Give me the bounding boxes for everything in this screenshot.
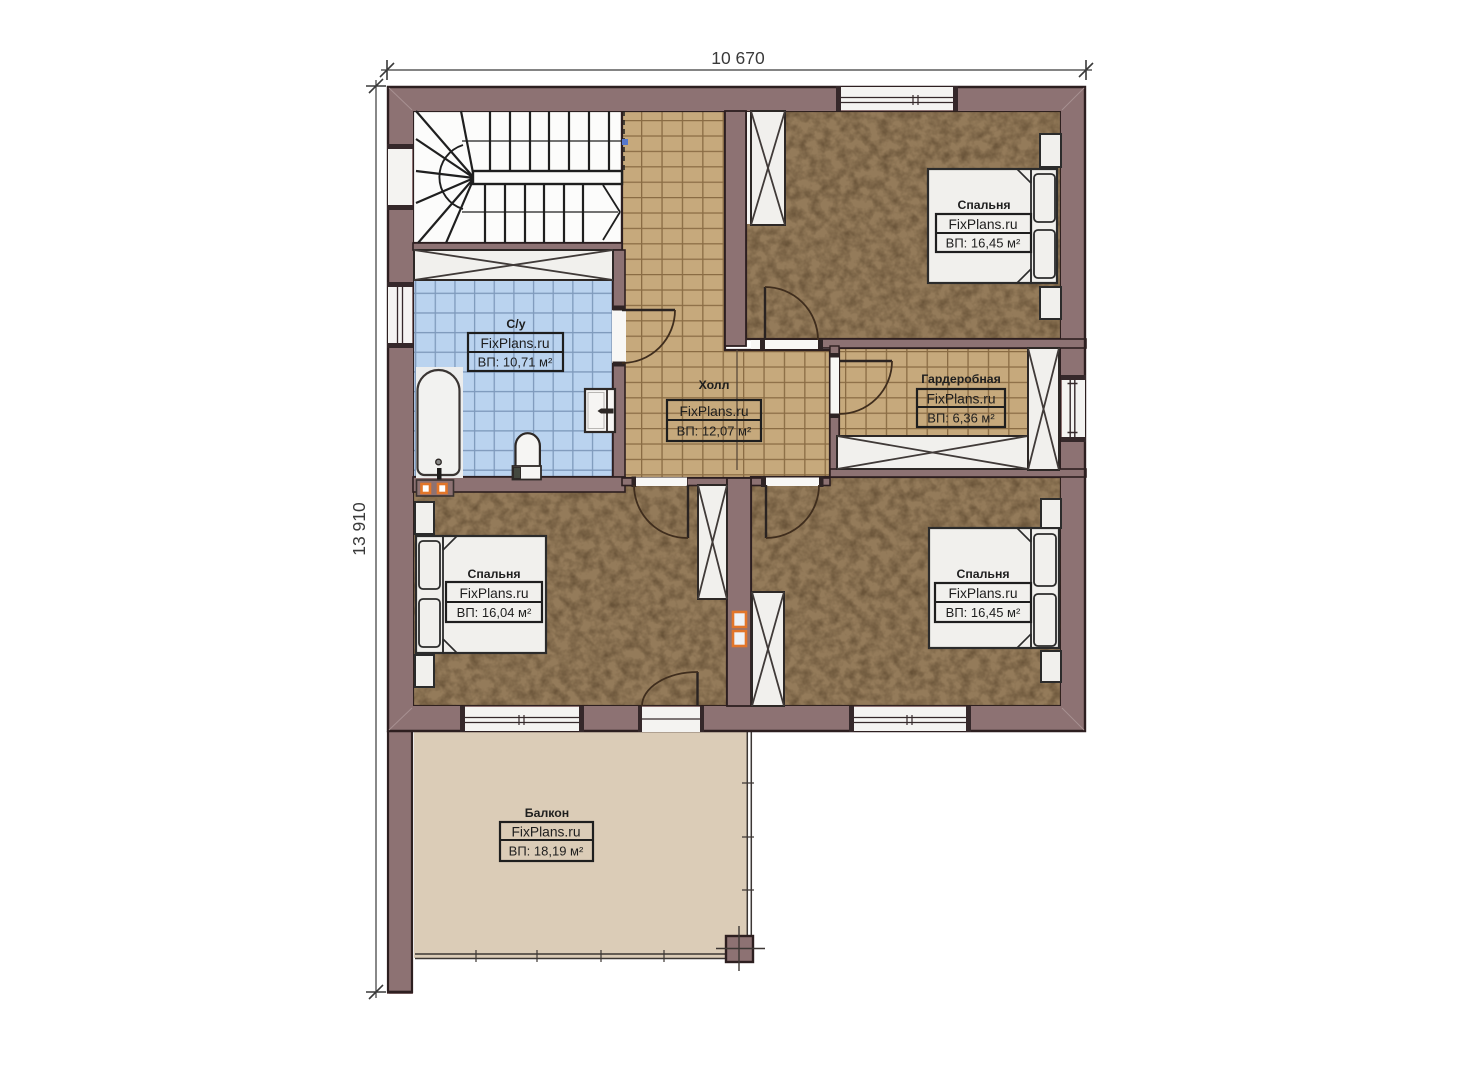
svg-text:ВП: 16,04 м²: ВП: 16,04 м² (457, 605, 532, 620)
svg-text:Спальня: Спальня (957, 198, 1010, 212)
svg-text:10 670: 10 670 (711, 48, 765, 68)
svg-text:Балкон: Балкон (525, 806, 569, 820)
svg-text:С/у: С/у (506, 317, 525, 331)
svg-text:ВП: 12,07 м²: ВП: 12,07 м² (677, 424, 752, 439)
svg-text:ВП: 6,36 м²: ВП: 6,36 м² (927, 411, 995, 426)
svg-text:Спальня: Спальня (467, 567, 520, 581)
svg-text:FixPlans.ru: FixPlans.ru (948, 217, 1017, 232)
svg-text:FixPlans.ru: FixPlans.ru (948, 586, 1017, 601)
svg-text:Гардеробная: Гардеробная (921, 372, 1001, 386)
svg-text:ВП: 10,71 м²: ВП: 10,71 м² (478, 355, 553, 370)
svg-text:ВП: 16,45 м²: ВП: 16,45 м² (946, 605, 1021, 620)
svg-text:Холл: Холл (699, 378, 730, 392)
svg-text:FixPlans.ru: FixPlans.ru (480, 336, 549, 351)
svg-text:ВП: 18,19 м²: ВП: 18,19 м² (509, 844, 584, 859)
svg-text:ВП: 16,45 м²: ВП: 16,45 м² (946, 236, 1021, 251)
svg-text:FixPlans.ru: FixPlans.ru (511, 825, 580, 840)
svg-text:Спальня: Спальня (956, 567, 1009, 581)
svg-text:FixPlans.ru: FixPlans.ru (679, 404, 748, 419)
svg-text:FixPlans.ru: FixPlans.ru (459, 586, 528, 601)
svg-text:13 910: 13 910 (349, 502, 369, 556)
svg-text:FixPlans.ru: FixPlans.ru (926, 392, 995, 407)
